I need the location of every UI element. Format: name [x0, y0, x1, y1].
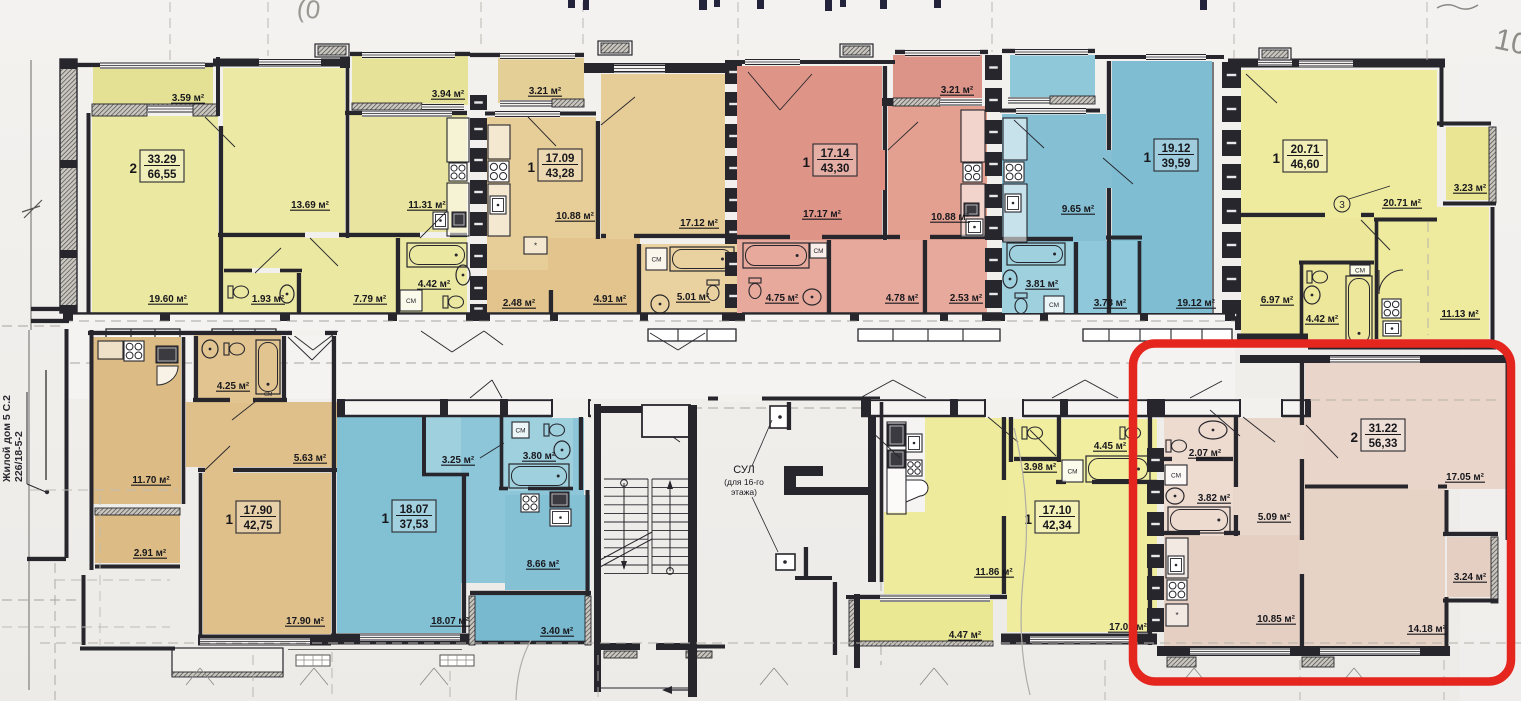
svg-text:13.69 м²: 13.69 м² — [291, 200, 329, 211]
svg-text:5.63 м²: 5.63 м² — [294, 453, 327, 464]
svg-text:10.88 м²: 10.88 м² — [556, 211, 594, 222]
svg-text:СМ: СМ — [651, 257, 661, 264]
svg-text:4.75 м²: 4.75 м² — [766, 293, 799, 304]
svg-text:2.48 м²: 2.48 м² — [503, 298, 536, 309]
svg-text:19.60 м²: 19.60 м² — [149, 294, 187, 305]
svg-text:1: 1 — [802, 155, 810, 170]
svg-text:1: 1 — [527, 160, 535, 175]
svg-text:17.90: 17.90 — [244, 505, 273, 517]
svg-text:4.78 м²: 4.78 м² — [886, 293, 919, 304]
svg-text:9.65 м²: 9.65 м² — [1062, 204, 1095, 215]
svg-text:*: * — [534, 242, 537, 251]
svg-text:19.12: 19.12 — [1162, 143, 1191, 155]
svg-text:17.14: 17.14 — [821, 148, 850, 160]
svg-text:(для 16-го: (для 16-го — [724, 477, 764, 487]
svg-text:43,30: 43,30 — [821, 163, 850, 175]
svg-text:10.85 м²: 10.85 м² — [1257, 614, 1295, 625]
svg-text:5.01 м²: 5.01 м² — [677, 292, 710, 303]
svg-text:этажа): этажа) — [731, 487, 757, 497]
svg-text:СУЛ: СУЛ — [733, 464, 754, 476]
svg-text:4.42 м²: 4.42 м² — [418, 279, 451, 290]
svg-text:3.25 м²: 3.25 м² — [442, 455, 475, 466]
svg-text:3.82 м²: 3.82 м² — [1198, 493, 1231, 504]
svg-text:СМ: СМ — [515, 428, 525, 435]
svg-text:2: 2 — [129, 161, 137, 176]
svg-text:(0: (0 — [295, 0, 322, 25]
svg-text:43,28: 43,28 — [546, 168, 575, 180]
svg-text:3.24 м²: 3.24 м² — [1454, 572, 1487, 583]
svg-text:18.07: 18.07 — [400, 504, 429, 516]
svg-text:11.70 м²: 11.70 м² — [132, 475, 170, 486]
svg-text:17.17 м²: 17.17 м² — [803, 209, 841, 220]
svg-text:3.40 м²: 3.40 м² — [541, 626, 574, 637]
svg-text:18.07 м²: 18.07 м² — [431, 616, 469, 627]
svg-text:3.78 м²: 3.78 м² — [1094, 298, 1127, 309]
svg-text:226/18-5-2: 226/18-5-2 — [13, 431, 25, 482]
svg-text:3.94 м²: 3.94 м² — [432, 89, 465, 100]
svg-text:8.66 м²: 8.66 м² — [527, 559, 560, 570]
svg-text:19.12 м²: 19.12 м² — [1177, 298, 1215, 309]
svg-text:СМ: СМ — [1355, 268, 1365, 275]
svg-text:3.23 м²: 3.23 м² — [1454, 183, 1487, 194]
svg-text:3: 3 — [1339, 200, 1345, 211]
svg-text:17.90 м²: 17.90 м² — [286, 616, 324, 627]
svg-text:2.07 м²: 2.07 м² — [1189, 448, 1222, 459]
svg-text:37,53: 37,53 — [400, 519, 429, 531]
svg-text:11.13 м²: 11.13 м² — [1441, 309, 1479, 320]
svg-text:4.45 м²: 4.45 м² — [1094, 441, 1127, 452]
svg-text:42,34: 42,34 — [1043, 520, 1072, 532]
svg-text:3.21 м²: 3.21 м² — [941, 85, 974, 96]
svg-text:66,55: 66,55 — [148, 169, 177, 181]
svg-text:11.31 м²: 11.31 м² — [408, 200, 446, 211]
svg-text:31.22: 31.22 — [1369, 423, 1398, 435]
svg-text:2.91 м²: 2.91 м² — [134, 548, 167, 559]
svg-text:СМ: СМ — [1049, 302, 1059, 309]
svg-text:4.25 м²: 4.25 м² — [217, 381, 250, 392]
svg-text:14.18 м²: 14.18 м² — [1408, 624, 1446, 635]
svg-text:3.81 м²: 3.81 м² — [1026, 279, 1059, 290]
svg-text:*: * — [1175, 611, 1178, 620]
svg-text:1: 1 — [381, 511, 389, 526]
svg-text:1: 1 — [1143, 150, 1151, 165]
svg-text:1: 1 — [1272, 151, 1280, 166]
svg-text:СМ: СМ — [1067, 469, 1077, 476]
svg-text:17.05 м²: 17.05 м² — [1446, 472, 1484, 483]
svg-text:4.42 м²: 4.42 м² — [1306, 314, 1339, 325]
svg-text:11.86 м²: 11.86 м² — [975, 567, 1013, 578]
svg-text:2: 2 — [1350, 430, 1358, 445]
svg-text:1.93 м²: 1.93 м² — [252, 294, 285, 305]
svg-text:СМ: СМ — [264, 392, 273, 398]
svg-text:СМ: СМ — [1171, 473, 1181, 480]
svg-text:17.01 м²: 17.01 м² — [1109, 622, 1147, 633]
svg-text:56,33: 56,33 — [1369, 438, 1398, 450]
svg-text:4.47 м²: 4.47 м² — [949, 630, 982, 641]
svg-text:2.53 м²: 2.53 м² — [950, 293, 983, 304]
svg-text:СМ: СМ — [813, 248, 823, 255]
svg-text:6.97 м²: 6.97 м² — [1261, 295, 1294, 306]
svg-text:39,59: 39,59 — [1162, 158, 1191, 170]
svg-text:4.91 м²: 4.91 м² — [594, 294, 627, 305]
svg-text:3.80 м²: 3.80 м² — [523, 451, 556, 462]
svg-text:3.98 м²: 3.98 м² — [1024, 462, 1057, 473]
svg-text:17.09: 17.09 — [546, 153, 575, 165]
svg-text:7.79 м²: 7.79 м² — [354, 294, 387, 305]
svg-text:17.12 м²: 17.12 м² — [680, 218, 718, 229]
svg-text:33.29: 33.29 — [148, 154, 177, 166]
svg-text:17.10: 17.10 — [1043, 505, 1072, 517]
svg-text:10.88 м²: 10.88 м² — [931, 212, 969, 223]
svg-text:20.71 м²: 20.71 м² — [1383, 198, 1421, 209]
svg-text:46,60: 46,60 — [1291, 159, 1320, 171]
svg-text:42,75: 42,75 — [244, 520, 273, 532]
svg-text:3.59 м²: 3.59 м² — [172, 93, 205, 104]
svg-text:Жилой дом 5 С.2: Жилой дом 5 С.2 — [1, 395, 13, 483]
svg-text:5.09 м²: 5.09 м² — [1258, 512, 1291, 523]
svg-text:СМ: СМ — [406, 298, 416, 305]
svg-text:1: 1 — [225, 512, 233, 527]
svg-text:20.71: 20.71 — [1291, 144, 1320, 156]
svg-text:3.21 м²: 3.21 м² — [529, 86, 562, 97]
